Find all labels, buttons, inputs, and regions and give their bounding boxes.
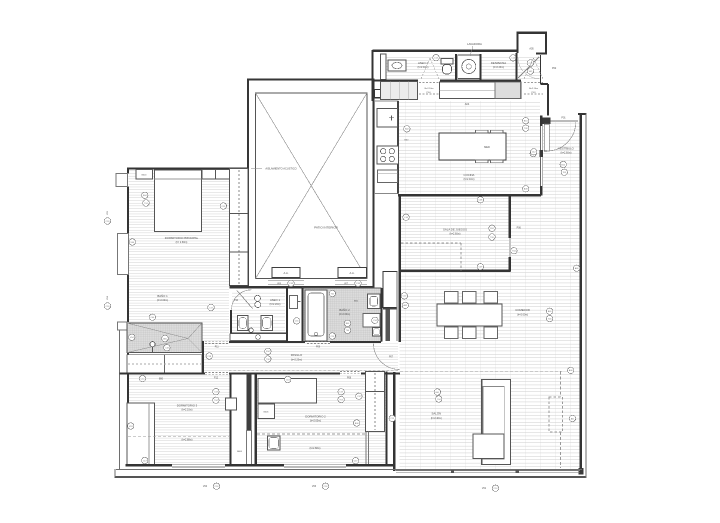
svg-text:COCINA: COCINA [464,173,475,177]
svg-text:P02: P02 [552,67,557,70]
svg-text:V06: V06 [277,284,282,286]
svg-text:P09: P09 [316,347,321,349]
svg-text:P04: P04 [427,92,432,94]
svg-text:DESPENSA: DESPENSA [491,61,506,65]
svg-text:PATIO INTERIOR: PATIO INTERIOR [314,226,339,230]
svg-text:P01: P01 [561,117,566,120]
svg-text:(h=2.20m): (h=2.20m) [270,303,281,306]
svg-text:ASEO 2: ASEO 2 [418,61,429,65]
svg-text:SALA DE JUEGOS: SALA DE JUEGOS [443,227,467,231]
svg-text:P03: P03 [532,92,537,94]
svg-text:B606: B606 [237,451,243,453]
svg-text:(h=2.88m): (h=2.88m) [182,438,193,441]
svg-text:(h=2.40m): (h=2.40m) [464,178,475,181]
svg-text:DORMITORIO PRINCIPAL: DORMITORIO PRINCIPAL [165,236,199,240]
svg-text:A04: A04 [465,103,470,106]
svg-text:DORMITORIO 2: DORMITORIO 2 [305,415,326,419]
svg-text:(h=2.60m): (h=2.60m) [450,232,461,235]
svg-text:LAVADORA: LAVADORA [467,42,482,46]
svg-text:SALÓN: SALÓN [432,411,441,416]
svg-text:P07: P07 [389,357,394,359]
svg-text:(h=2.40m): (h=2.40m) [418,66,429,69]
svg-text:(h=2.60m): (h=2.60m) [310,420,321,423]
svg-text:V01: V01 [482,487,487,490]
svg-text:P10: P10 [234,300,239,302]
svg-text:AISLAMIENTO ACUSTICO: AISLAMIENTO ACUSTICO [265,166,296,170]
svg-text:COMEDOR: COMEDOR [515,308,530,312]
svg-text:(h=2.40m): (h=2.40m) [493,66,504,69]
svg-text:B=2.10m: B=2.10m [529,88,538,90]
svg-text:MED: MED [484,145,490,149]
svg-text:(h=2.60m): (h=2.60m) [517,313,528,316]
svg-text:A.A.: A.A. [283,271,288,275]
svg-text:(h=2.60m): (h=2.60m) [339,313,350,316]
svg-text:PASILLO: PASILLO [291,353,303,357]
svg-text:P08: P08 [347,377,352,379]
svg-text:BAÑO 2: BAÑO 2 [339,307,350,312]
svg-text:P06: P06 [517,226,522,229]
svg-text:(h=2.20m): (h=2.20m) [291,358,302,361]
svg-text:(h=2.10m): (h=2.10m) [182,409,193,412]
svg-text:V07: V07 [344,284,349,286]
svg-text:V05: V05 [107,210,109,215]
svg-text:V04: V04 [107,295,109,300]
svg-text:(h=2.40m): (h=2.40m) [431,417,442,420]
svg-text:P12: P12 [214,378,219,380]
svg-text:BAÑO 1: BAÑO 1 [157,293,168,298]
svg-text:(h=2.60m): (h=2.60m) [157,299,168,302]
svg-text:DORMITORIO 3: DORMITORIO 3 [177,404,198,408]
svg-text:A.A.: A.A. [349,271,354,275]
svg-text:(h= 2.60m): (h= 2.60m) [176,241,188,244]
svg-text:(h=2.88m): (h=2.88m) [310,447,321,450]
svg-text:A05: A05 [529,48,534,51]
svg-text:(h=2.60m): (h=2.60m) [561,151,572,154]
svg-text:B90: B90 [159,378,164,380]
svg-text:ASEO 1: ASEO 1 [270,298,281,302]
svg-text:V03: V03 [312,485,317,488]
svg-text:V04: V04 [203,485,208,488]
svg-text:VESTÍBULO: VESTÍBULO [558,146,575,150]
svg-text:B=2.10m: B=2.10m [425,88,434,90]
